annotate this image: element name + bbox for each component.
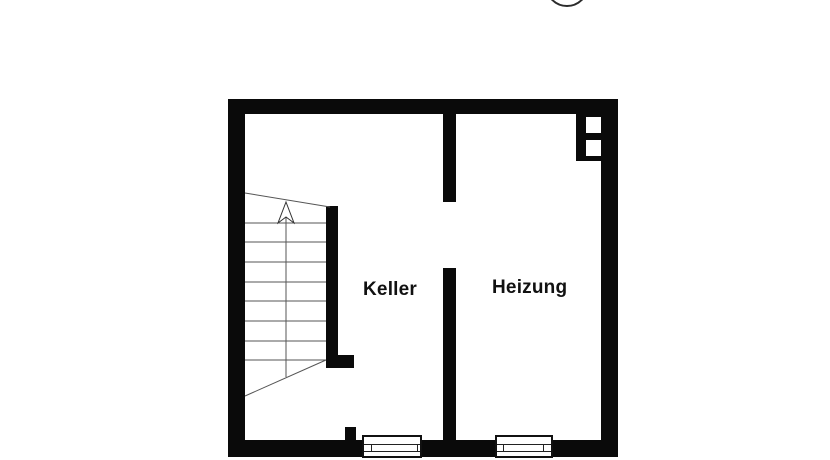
window-mullion-tick bbox=[543, 444, 544, 452]
staircase bbox=[0, 0, 830, 460]
window bbox=[362, 435, 422, 458]
window-mullion-tick bbox=[371, 444, 372, 452]
window-frame-line bbox=[364, 444, 420, 445]
floor-plan-canvas: Keller Heizung bbox=[0, 0, 830, 460]
window-mullion-tick bbox=[417, 444, 418, 452]
room-label-heizung: Heizung bbox=[492, 277, 567, 299]
window bbox=[495, 435, 553, 458]
window-frame-line bbox=[364, 451, 420, 452]
window-mullion-tick bbox=[503, 444, 504, 452]
room-label-keller: Keller bbox=[363, 279, 417, 301]
